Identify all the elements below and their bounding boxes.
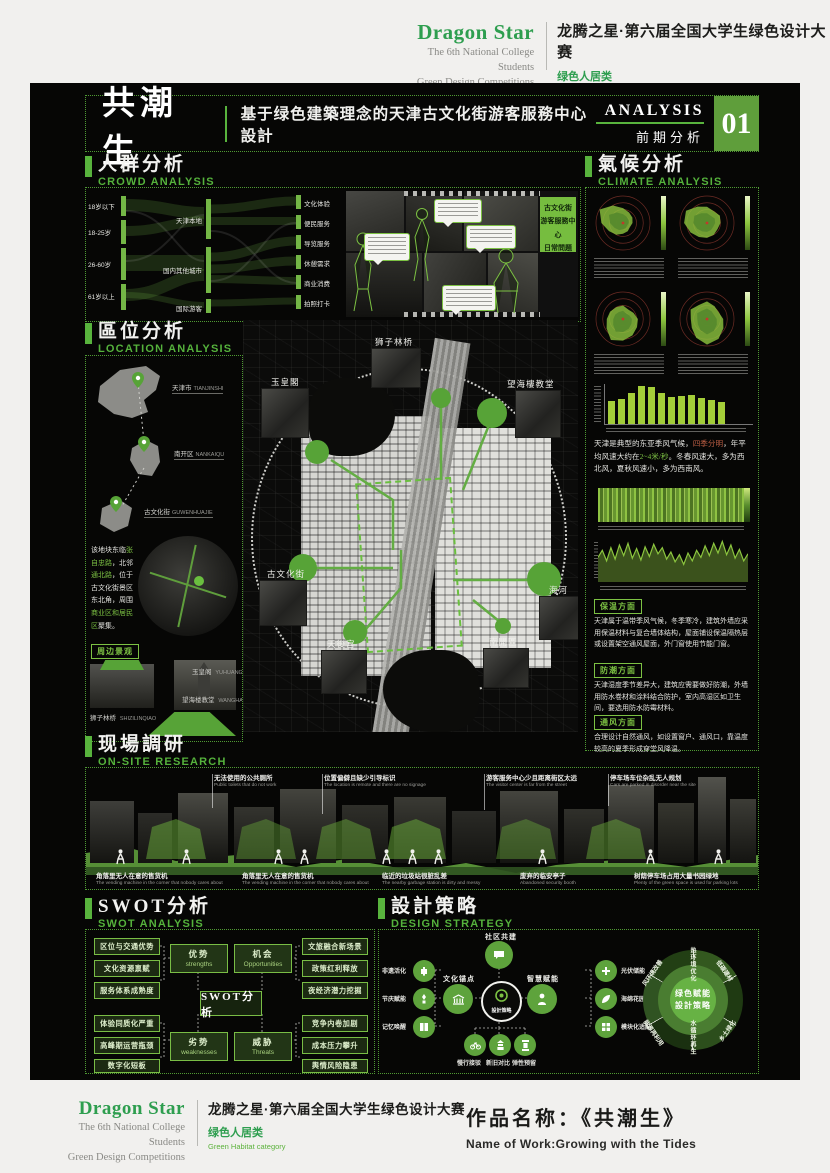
competition-title: 龙腾之星·第六届全国大学生绿色设计大赛 [208, 1098, 465, 1118]
speech-bubble [364, 233, 410, 261]
swot-opportunity-item: 政策红利释放 [302, 960, 368, 977]
wind-rose-1 [592, 192, 670, 284]
brand-divider [197, 1100, 198, 1146]
wind-rose-grid [590, 192, 754, 382]
slow-traffic-circle [464, 1034, 486, 1056]
swot-center: SWOT分析 [200, 991, 262, 1016]
note-label: 保温方面 [594, 599, 642, 614]
swot-threat-item: 成本压力攀升 [302, 1037, 368, 1054]
map-label: 古文化街 [267, 568, 305, 580]
sankey-left-label: 26-60岁 [88, 259, 111, 269]
bar [718, 402, 725, 424]
line-axis-labels [600, 586, 746, 590]
sankey-right-label: 导览服务 [304, 238, 330, 248]
bar [708, 400, 715, 424]
sankey-left-label: 18-25岁 [88, 227, 111, 237]
sankey-right-label: 便民服务 [304, 218, 330, 228]
rose-colorbar [745, 292, 750, 346]
building-block [730, 799, 756, 863]
pedestrian-silhouette [182, 849, 191, 865]
footer-brand: Dragon Star The 6th National College Stu… [40, 1098, 465, 1166]
strategy-item-label: 节庆赋能 [382, 994, 406, 1003]
swot-section-header: SWOT分析 SWOT ANALYSIS [85, 897, 211, 930]
onsite-title-cn: 现場調研 [98, 735, 227, 755]
strategy-item-label: 弹性预留 [512, 1058, 536, 1067]
poster-subtitle: 基于绿色建築理念的天津古文化街游客服務中心設計 [241, 102, 596, 146]
swot-content-box: 区位与交通优势 文化资源禀赋 服务体系成熟度 体验同质化严重 高峰期运营瓶颈 数… [85, 929, 375, 1074]
swot-strengths-hub: 优势strengths [170, 944, 228, 973]
rose-caption-lines [594, 258, 664, 280]
work-name-block: 作品名称：《共潮生》 Name of Work:Growing with the… [466, 1102, 696, 1151]
festival-circle [413, 988, 435, 1010]
poster-titlebar: 共潮生 基于绿色建築理念的天津古文化街游客服務中心設計 ANALYSIS 前期分… [85, 95, 759, 152]
strategy-center-circle: 設計策略 [481, 981, 522, 1022]
work-name-en: Name of Work:Growing with the Tides [466, 1137, 696, 1151]
rose-colorbar [661, 196, 666, 250]
swot-threats-hub: 威胁Threats [234, 1032, 292, 1061]
museum-icon [452, 994, 465, 1005]
brand-logo: Dragon Star [395, 20, 534, 45]
building-block [658, 803, 694, 863]
strategy-title-cn: 設計策略 [391, 897, 513, 917]
contrast-circle [489, 1034, 511, 1056]
strategy-item-label: 记忆唤醒 [382, 1022, 406, 1031]
heritage-circle [413, 960, 435, 982]
site-context-map: 狮子林桥 玉皇閣 望海樓教堂 古文化街 海河 天後宫 南開區 [243, 320, 578, 732]
location-paragraph: 该地块东临张自忠路，北邻通北路，位于古文化街景区东北角，周围商业区和居民区聚集。 [91, 544, 137, 632]
speech-bubble [442, 285, 496, 311]
leaf-icon [601, 994, 611, 1004]
pedestrian-silhouette [382, 849, 391, 865]
monthly-wind-bar-chart [594, 384, 750, 432]
strategy-content-box: 社区共建 設計策略 文化锚点 智慧赋能 非遗活化 [378, 929, 759, 1074]
section-bullet [378, 898, 385, 919]
onsite-content-box: 无法使用的公共厕所Public toilets that do not work… [85, 767, 759, 890]
map-photo-thumb [321, 650, 367, 694]
category-cn: 绿色人居类 [557, 68, 830, 84]
pedestrian-silhouette [538, 849, 547, 865]
pin-label-nankai: 南开区NANKAIQU [174, 448, 224, 460]
wind-rose-4 [676, 288, 754, 380]
lantern-icon [419, 966, 429, 976]
onsite-note: 树荫停车场占用大量书园绿地Plenty of the green space i… [634, 870, 738, 886]
analysis-block: ANALYSIS 前期分析 [596, 102, 704, 146]
strategy-center-label: 設計策略 [491, 1007, 511, 1014]
swot-weakness-item: 体验同质化严重 [94, 1015, 160, 1032]
sankey-left-label: 61岁以上 [88, 291, 115, 301]
sankey-mid-label: 天津本地 [176, 215, 202, 225]
climate-paragraph: 天津是典型的东亚季风气候，四季分明，年平均风速大约在2~4米/秒。冬春风速大，多… [594, 438, 750, 476]
crowd-title-cn: 人群分析 [98, 155, 215, 175]
culture-hub-label: 文化锚点 [443, 974, 475, 984]
wind-rose-3 [592, 288, 670, 380]
location-title-cn: 區位分析 [98, 322, 232, 342]
analysis-en: ANALYSIS [596, 102, 704, 120]
map-label: 南開區 [489, 636, 518, 648]
bar [678, 396, 685, 424]
pedestrian-silhouette [646, 849, 655, 865]
bicycle-icon [470, 1041, 481, 1050]
climate-note-insulation: 保温方面 天津属于温带季风气候，冬季寒冷，建筑外墙应采用保温材料与复合墙体结构，… [594, 596, 750, 651]
annual-wind-line-chart [594, 538, 750, 590]
wheel-segment-label: 热环境优化 [688, 947, 697, 982]
bar [648, 387, 655, 424]
person-icon [537, 993, 547, 1006]
competition-title: 龙腾之星·第六届全国大学生绿色设计大赛 [557, 20, 830, 62]
sankey-mid-label: 国内其他城市 [163, 265, 202, 275]
swot-weakness-item: 数字化短板 [94, 1059, 160, 1073]
rose-caption-lines [678, 258, 748, 280]
location-section-header: 區位分析 LOCATION ANALYSIS [85, 322, 232, 355]
crowd-photo-collage: 古文化街 游客服務中心 日常問題 [346, 191, 578, 317]
strategy-item-label: 新旧对比 [486, 1058, 510, 1067]
swot-strength-item: 文化资源禀赋 [94, 960, 160, 977]
line-axis-ticks [594, 542, 598, 578]
sankey-right-label: 文化体验 [304, 198, 330, 208]
smart-circle [527, 984, 557, 1014]
work-name-cn: 作品名称：《共潮生》 [466, 1102, 696, 1131]
bar [698, 398, 705, 424]
sponge-garden-circle [595, 988, 617, 1010]
onsite-note: 无法使用的公共厕所Public toilets that do not work [214, 772, 276, 788]
map-label: 海河 [549, 584, 568, 596]
swot-opportunity-item: 夜经济潜力挖掘 [302, 982, 368, 999]
climate-content-box: 天津是典型的东亚季风气候，四季分明，年平均风速大约在2~4米/秒。冬春风速大，多… [585, 187, 759, 751]
landmark-label: 玉皇阁 YUHUANGGE [192, 666, 243, 676]
heatmap-axis [598, 526, 744, 530]
analysis-underline [596, 122, 704, 124]
brand-logo: Dragon Star [40, 1098, 185, 1120]
building-block [90, 801, 134, 863]
onsite-note: 游客服务中心少且距离街区太远The visitor center is far … [486, 772, 577, 788]
category-cn: 绿色人居类 [208, 1124, 465, 1140]
section-bullet [85, 736, 92, 757]
brand-sub1: The 6th National College Students [40, 1120, 185, 1150]
book-icon [419, 1022, 429, 1032]
swot-title-cn: SWOT分析 [98, 897, 211, 917]
title-divider [225, 106, 227, 142]
strategy-item-label: 非遗活化 [382, 966, 406, 975]
landmark-label: 狮子林桥 SHIZILINQIAO [90, 712, 156, 722]
rose-colorbar [661, 292, 666, 346]
brand-sub1: The 6th National College Students [395, 45, 534, 75]
collage-issue-badge: 古文化街 游客服務中心 日常問題 [540, 197, 576, 252]
sankey-right-label: 休憩需求 [304, 258, 330, 268]
aerial-photo [138, 536, 238, 636]
swot-strength-item: 区位与交通优势 [94, 938, 160, 955]
hourly-wind-heatmap [594, 488, 750, 530]
grid-icon [601, 1022, 611, 1032]
landmark-photo [90, 664, 154, 708]
note-text: 合理设计自然通风，如设置窗户、通风口，靠温度较高的夏季形成穿堂风降温。 [594, 732, 750, 755]
sankey-right-label: 拍照打卡 [304, 298, 330, 308]
rose-caption-lines [594, 354, 664, 376]
solar-circle [595, 960, 617, 982]
map-photo-thumb [259, 580, 307, 626]
brand-sub2: Green Design Competitions [40, 1150, 185, 1165]
section-bullet [85, 898, 92, 919]
pedestrian-silhouette [434, 849, 443, 865]
bar [638, 386, 645, 424]
section-bullet [85, 323, 92, 344]
climate-note-ventilation: 通风方面 合理设计自然通风，如设置窗户、通风口，靠温度较高的夏季形成穿堂风降温。 [594, 712, 750, 755]
column-icon [521, 1040, 530, 1051]
location-title-en: LOCATION ANALYSIS [98, 343, 232, 355]
china-map-shape [98, 366, 160, 418]
map-label: 玉皇閣 [271, 376, 300, 388]
landmark-sketches: 玉皇阁 YUHUANGGE 狮子林桥 SHIZILINQIAO 望海楼教堂 WA… [90, 660, 238, 738]
wind-rose-2 [676, 192, 754, 284]
bar [628, 393, 635, 424]
map-photo-thumb [515, 390, 561, 438]
wheel-segment-label: 水循环再生 [688, 1020, 697, 1055]
sankey-left-label: 18岁以下 [88, 201, 115, 211]
poi-node [431, 388, 451, 408]
wheel-center: 绿色赋能 設計策略 [670, 977, 716, 1023]
swot-weaknesses-hub: 劣势weaknesses [170, 1032, 228, 1061]
climate-note-moisture: 防潮方面 天津湿度季节差异大，建筑应需要做好防潮，外墙用防水卷材和涂料结合防护，… [594, 660, 750, 715]
strategy-item-label: 慢行接驳 [457, 1058, 481, 1067]
bar [658, 393, 665, 424]
map-photo-thumb [483, 648, 529, 688]
rose-caption-lines [678, 354, 748, 376]
crowd-section-header: 人群分析 CROWD ANALYSIS [85, 155, 215, 188]
flexible-circle [514, 1034, 536, 1056]
map-photo-thumb [371, 348, 421, 388]
poi-node [305, 440, 329, 464]
note-text: 天津属于温带季风气候，冬季寒冷，建筑外墙应采用保温材料与复合墙体结构，屋面铺设保… [594, 616, 750, 651]
surroundings-label: 周边景观 [91, 644, 139, 659]
map-label: 天後宫 [327, 638, 356, 650]
plus-icon [601, 966, 611, 976]
onsite-section-header: 现場調研 ON-SITE RESEARCH [85, 735, 227, 768]
sankey-mid-label: 国际游客 [176, 303, 202, 313]
pin-label-guwenhuajie: 古文化街GUWENHUAJIE [144, 506, 213, 518]
map-label: 望海樓教堂 [507, 378, 555, 390]
note-label: 通风方面 [594, 715, 642, 730]
person-outline-icon [408, 207, 434, 285]
swot-threat-item: 舆情风险隐患 [302, 1059, 368, 1073]
heatmap-colorbar [744, 488, 750, 522]
onsite-note: 角落里无人在意的售货机The vending machine in the co… [242, 870, 369, 886]
pedestrian-silhouette [408, 849, 417, 865]
sankey-right-label: 商业消费 [304, 278, 330, 288]
site-dot [194, 576, 204, 586]
onsite-note: 位置偏僻且缺少引导标识The location is remote and th… [324, 772, 426, 788]
rose-colorbar [745, 196, 750, 250]
pagoda-icon [496, 1040, 505, 1051]
map-photo-thumb [261, 388, 309, 438]
poster: 共潮生 基于绿色建築理念的天津古文化街游客服務中心設計 ANALYSIS 前期分… [30, 83, 800, 1080]
speech-bubble [434, 199, 482, 223]
bar [688, 395, 695, 424]
swot-opportunities-hub: 机会Opportunities [234, 944, 292, 973]
swot-opportunity-item: 文旅融合新场景 [302, 938, 368, 955]
location-content-box: 天津市TIANJINSHI 南开区NANKAIQU 古文化街GUWENHUAJI… [85, 355, 243, 742]
onsite-note: 废弃的临安亭子Abandoned security booth [520, 870, 576, 886]
pin-label-tianjin: 天津市TIANJINSHI [172, 382, 223, 394]
pedestrian-silhouette [714, 849, 723, 865]
bar [618, 399, 625, 424]
bar-axis-ticks [594, 386, 601, 424]
onsite-note: 临近的垃圾站很脏乱差The nearby garbage station is … [382, 870, 480, 886]
section-bullet [585, 156, 592, 177]
bar-axis-labels [606, 428, 746, 432]
swot-threat-item: 竞争内卷加剧 [302, 1015, 368, 1032]
module-circle [595, 1016, 617, 1038]
bar [668, 397, 675, 424]
section-bullet [85, 156, 92, 177]
smart-hub-label: 智慧赋能 [527, 974, 559, 984]
crowd-content-box: 18岁以下 18-25岁 26-60岁 61岁以上 天津本地 国内其他城市 国际… [85, 187, 581, 322]
brand-divider [546, 22, 547, 70]
page-number-badge: 01 [714, 96, 759, 151]
map-label: 狮子林桥 [375, 336, 413, 348]
climate-title-cn: 氣候分析 [598, 155, 723, 175]
note-label: 防潮方面 [594, 663, 642, 678]
landmark-label: 望海楼教堂 WANGHAILOU [182, 694, 243, 704]
bar [608, 401, 615, 424]
strategy-section-header: 設計策略 DESIGN STRATEGY [378, 897, 513, 930]
culture-circle [443, 984, 473, 1014]
map-photo-thumb [539, 596, 578, 640]
knot-icon [419, 994, 429, 1004]
climate-section-header: 氣候分析 CLIMATE ANALYSIS [585, 155, 723, 188]
category-en: Green Habitat category [208, 1142, 465, 1151]
pedestrian-silhouette [116, 849, 125, 865]
note-text: 天津湿度季节差异大，建筑应需要做好防潮，外墙用防水卷材和涂料结合防护，室内高湿区… [594, 680, 750, 715]
chat-icon [493, 950, 505, 961]
film-sprocket-strip [404, 191, 540, 196]
green-walkway [148, 712, 236, 736]
onsite-note: 角落里无人在意的售货机The vending machine in the co… [96, 870, 223, 886]
pedestrian-silhouette [274, 849, 283, 865]
memory-circle [413, 1016, 435, 1038]
swot-strength-item: 服务体系成熟度 [94, 982, 160, 999]
analysis-cn: 前期分析 [596, 127, 704, 146]
crowd-sankey-chart: 18岁以下 18-25岁 26-60岁 61岁以上 天津本地 国内其他城市 国际… [88, 191, 344, 317]
swot-weakness-item: 高峰期运营瓶颈 [94, 1037, 160, 1054]
building-block [452, 811, 496, 863]
green-strategy-wheel: 绿色赋能 設計策略 热环境优化 低碳建材 乡土绿化 水循环再生 能源再利用 风环… [637, 944, 749, 1056]
community-circle [485, 941, 513, 969]
target-icon [495, 989, 508, 1002]
poi-node [477, 398, 507, 428]
pedestrian-silhouette [300, 849, 309, 865]
poi-node [495, 618, 511, 634]
onsite-note: 停车场车位杂乱无人规划Cars are parked in disorder n… [610, 772, 696, 788]
speech-bubble [466, 225, 516, 249]
